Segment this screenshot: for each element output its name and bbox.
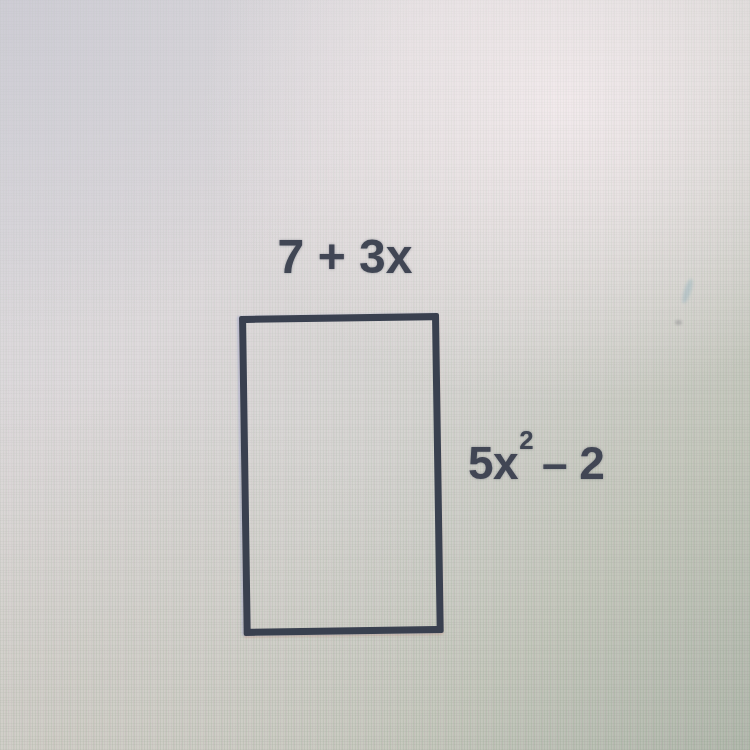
rectangle-shape [239, 313, 444, 636]
math-figure: 7 + 3x 5x2– 2 [0, 0, 750, 750]
side-label-base: 5x [468, 437, 518, 489]
screen-photo: 7 + 3x 5x2– 2 [0, 0, 750, 750]
side-label-exponent: 2 [519, 426, 533, 454]
side-label-tail: – 2 [542, 437, 604, 489]
top-width-label: 7 + 3x [245, 233, 445, 281]
right-height-label: 5x2– 2 [468, 439, 604, 487]
